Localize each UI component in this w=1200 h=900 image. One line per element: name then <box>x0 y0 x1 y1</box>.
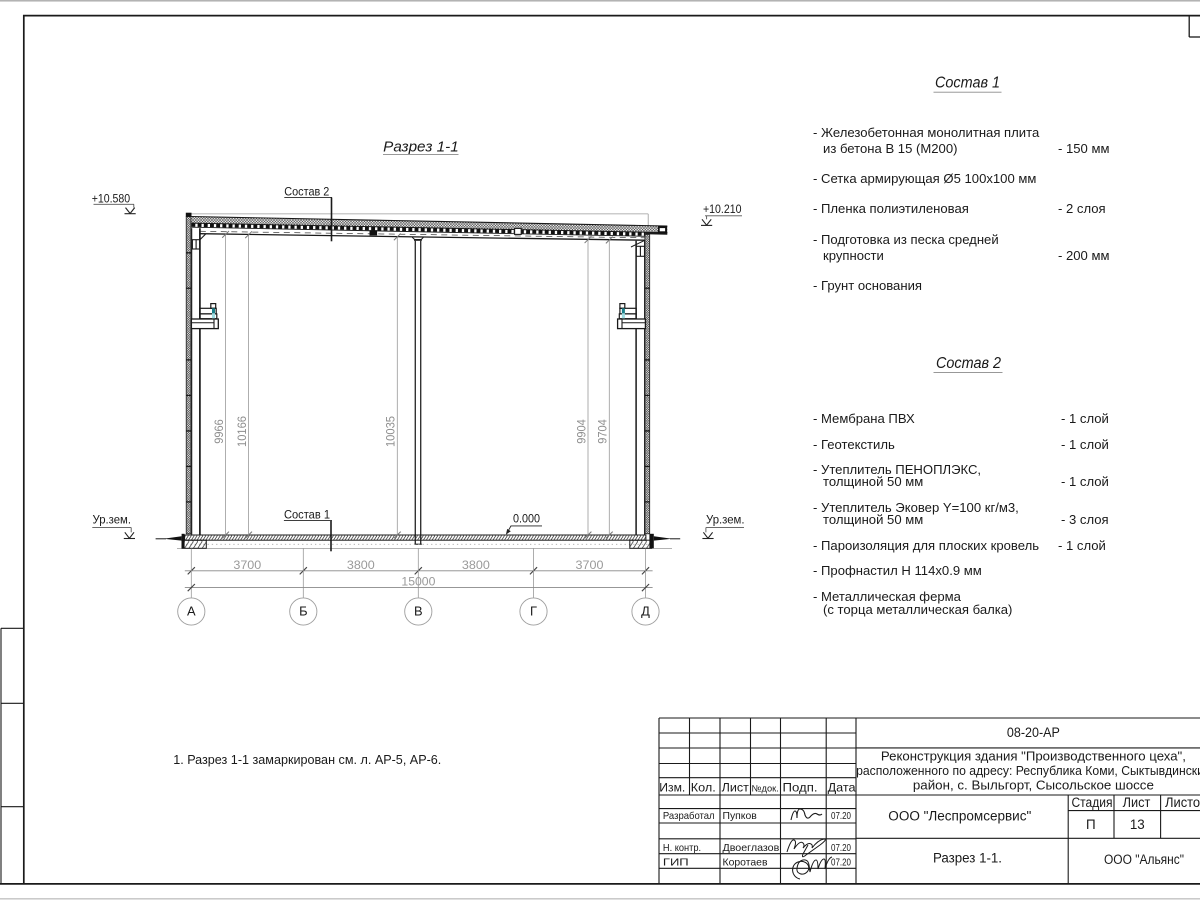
svg-text:07.20: 07.20 <box>831 811 851 822</box>
svg-text:Разрез 1-1: Разрез 1-1 <box>383 138 459 155</box>
svg-text:07.20: 07.20 <box>831 843 851 854</box>
svg-text:ООО "Леспромсервис": ООО "Леспромсервис" <box>888 808 1031 823</box>
svg-text:Листов: Листов <box>1165 795 1200 810</box>
svg-text:08-20-АР: 08-20-АР <box>1007 725 1060 740</box>
svg-text:Разработал: Разработал <box>663 810 715 822</box>
svg-text:В: В <box>414 604 423 619</box>
svg-text:15000: 15000 <box>401 575 435 589</box>
svg-text:3700: 3700 <box>233 558 261 572</box>
svg-text:Ур.зем.: Ур.зем. <box>93 513 132 527</box>
svg-text:+10.210: +10.210 <box>703 202 742 216</box>
svg-text:3700: 3700 <box>576 558 604 572</box>
svg-text:0.000: 0.000 <box>513 511 540 525</box>
svg-text:Лист: Лист <box>722 780 750 794</box>
svg-text:Д: Д <box>641 604 650 619</box>
svg-text:Дата: Дата <box>828 780 856 794</box>
svg-text:Состав 1: Состав 1 <box>935 75 1000 92</box>
svg-text:9966: 9966 <box>213 419 226 444</box>
svg-text:9904: 9904 <box>575 419 588 444</box>
svg-text:ГИП: ГИП <box>663 857 689 868</box>
svg-text:А: А <box>187 604 196 619</box>
svg-text:Состав 2: Состав 2 <box>936 355 1001 372</box>
svg-text:Коротаев: Коротаев <box>723 857 768 868</box>
svg-text:+10.580: +10.580 <box>92 191 131 205</box>
svg-text:3800: 3800 <box>462 558 490 572</box>
svg-text:Подп.: Подп. <box>783 780 818 794</box>
svg-text:Стадия: Стадия <box>1072 795 1113 810</box>
svg-text:Ур.зем.: Ур.зем. <box>706 513 745 527</box>
svg-text:3800: 3800 <box>347 558 375 572</box>
svg-text:10035: 10035 <box>385 416 398 447</box>
svg-text:07.20: 07.20 <box>831 857 851 868</box>
svg-text:район, с. Выльгорт, Сысольское: район, с. Выльгорт, Сысольское шоссе <box>913 778 1154 793</box>
svg-text:П: П <box>1086 817 1096 832</box>
svg-text:10166: 10166 <box>236 416 249 447</box>
svg-text:Состав 2: Состав 2 <box>284 184 329 198</box>
svg-text:Г: Г <box>530 604 537 619</box>
svg-text:Разрез 1-1.: Разрез 1-1. <box>933 851 1002 866</box>
svg-text:Пупков: Пупков <box>723 811 758 822</box>
svg-text:9704: 9704 <box>597 419 610 444</box>
svg-text:Изм.: Изм. <box>659 780 685 794</box>
svg-text:расположенного по адресу: Респ: расположенного по адресу: Республика Ком… <box>856 763 1200 778</box>
svg-text:Лист: Лист <box>1123 795 1151 810</box>
svg-text:Состав 1: Состав 1 <box>284 507 330 521</box>
svg-text:ООО "Альянс": ООО "Альянс" <box>1104 852 1184 867</box>
svg-text:Н. контр.: Н. контр. <box>663 843 701 854</box>
svg-text:Б: Б <box>299 604 307 619</box>
svg-text:13: 13 <box>1130 817 1145 832</box>
svg-text:Двоеглазов: Двоеглазов <box>723 843 780 854</box>
svg-text:Реконструкция здания "Производ: Реконструкция здания "Производственного … <box>881 748 1186 763</box>
svg-text:Кол.: Кол. <box>691 780 716 794</box>
svg-text:№док.: №док. <box>752 783 779 793</box>
